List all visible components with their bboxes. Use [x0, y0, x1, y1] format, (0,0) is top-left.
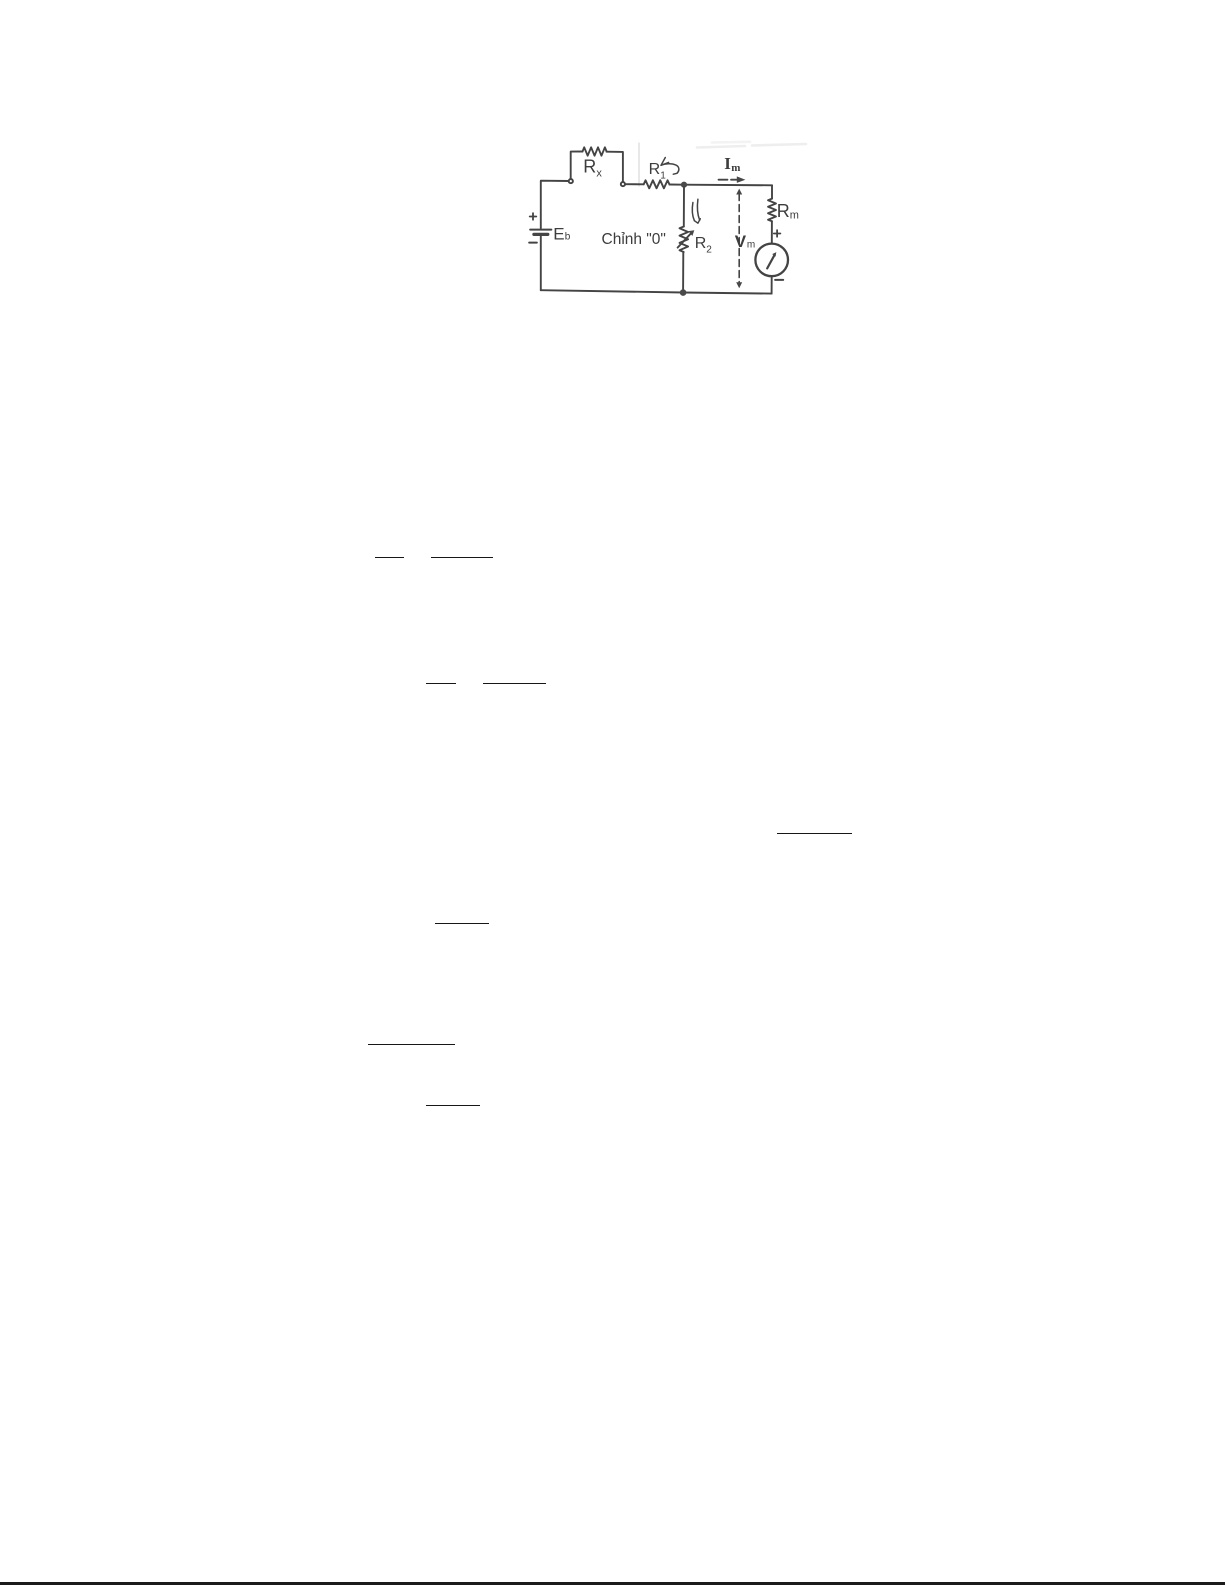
- svg-text:Chỉnh "0": Chỉnh "0": [602, 231, 666, 248]
- svg-text:R: R: [695, 235, 707, 252]
- svg-text:1: 1: [660, 171, 666, 182]
- svg-text:2: 2: [706, 245, 712, 256]
- svg-text:x: x: [596, 168, 602, 180]
- svg-text:R: R: [777, 201, 790, 221]
- svg-text:E: E: [553, 224, 564, 243]
- svg-text:b: b: [565, 232, 571, 243]
- svg-text:m: m: [790, 209, 799, 221]
- svg-text:m: m: [731, 162, 740, 174]
- svg-text:m: m: [747, 239, 755, 250]
- svg-text:I: I: [724, 154, 731, 173]
- svg-text:V: V: [735, 232, 747, 251]
- svg-text:R: R: [583, 157, 596, 177]
- svg-text:R: R: [649, 161, 661, 178]
